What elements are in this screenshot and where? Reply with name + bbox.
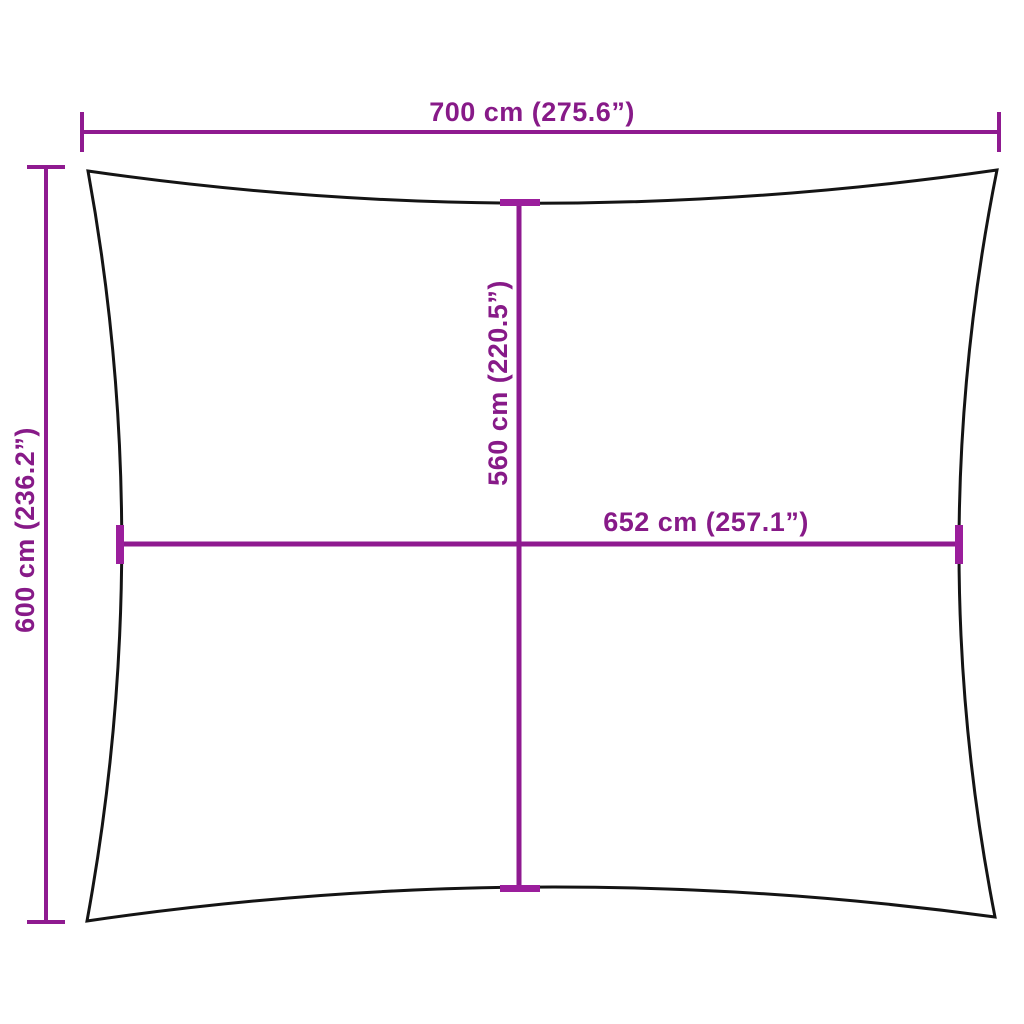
inner-height-top-tick bbox=[500, 199, 540, 206]
inner-height-bottom-tick bbox=[500, 885, 540, 892]
left-height-dimension-label: 600 cm (236.2”) bbox=[10, 427, 40, 633]
top-width-dimension-label: 700 cm (275.6”) bbox=[429, 97, 635, 127]
left-height-dimension: 600 cm (236.2”) bbox=[10, 167, 65, 922]
inner-height-dimension-label: 560 cm (220.5”) bbox=[483, 280, 513, 486]
top-width-dimension: 700 cm (275.6”) bbox=[82, 97, 999, 152]
dimension-diagram-canvas: 700 cm (275.6”) 600 cm (236.2”) 560 cm (… bbox=[0, 0, 1024, 1024]
inner-width-left-tick bbox=[116, 525, 124, 564]
inner-width-dimension-label: 652 cm (257.1”) bbox=[603, 507, 809, 537]
dimension-diagram: 700 cm (275.6”) 600 cm (236.2”) 560 cm (… bbox=[0, 0, 1024, 1024]
inner-width-right-tick bbox=[955, 525, 963, 564]
